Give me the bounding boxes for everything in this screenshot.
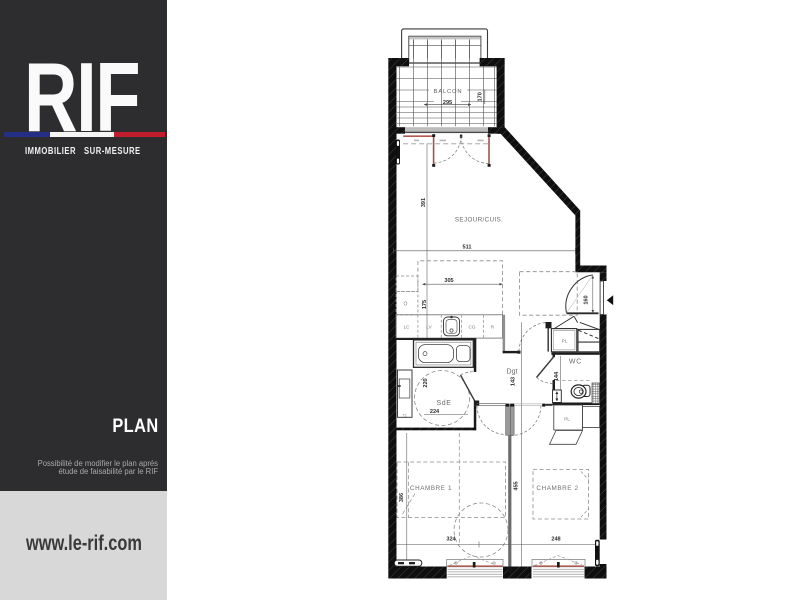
svg-text:PL: PL — [562, 339, 568, 345]
svg-text:248: 248 — [551, 537, 560, 543]
svg-text:386: 386 — [399, 493, 405, 502]
svg-text:PL: PL — [564, 417, 570, 423]
svg-text:224: 224 — [430, 409, 440, 415]
svg-text:305: 305 — [444, 278, 453, 284]
svg-text:T1: T1 — [402, 414, 406, 418]
svg-text:144: 144 — [554, 371, 560, 381]
svg-text:R: R — [491, 325, 495, 330]
svg-text:WC: WC — [569, 359, 582, 366]
svg-text:LC: LC — [404, 325, 411, 330]
svg-text:170: 170 — [478, 92, 484, 101]
svg-text:295: 295 — [443, 100, 452, 106]
svg-text:SEJOUR/CUIS.: SEJOUR/CUIS. — [455, 217, 503, 224]
svg-text:SdE: SdE — [436, 400, 451, 407]
svg-text:BALCON: BALCON — [434, 89, 463, 95]
svg-text:LV: LV — [426, 325, 432, 330]
svg-text:220: 220 — [423, 378, 429, 387]
svg-text:391: 391 — [421, 198, 427, 207]
svg-text:455: 455 — [514, 481, 520, 490]
svg-text:175: 175 — [422, 300, 428, 309]
svg-text:143: 143 — [511, 377, 517, 386]
svg-text:CHAMBRE 1: CHAMBRE 1 — [410, 485, 452, 492]
svg-text:O: O — [404, 302, 408, 308]
svg-text:CG: CG — [469, 325, 476, 330]
svg-text:CHAMBRE 2: CHAMBRE 2 — [536, 485, 578, 492]
svg-text:324: 324 — [446, 537, 456, 543]
svg-text:160: 160 — [584, 295, 590, 304]
svg-text:Dgt: Dgt — [507, 369, 518, 376]
svg-text:511: 511 — [462, 245, 471, 251]
